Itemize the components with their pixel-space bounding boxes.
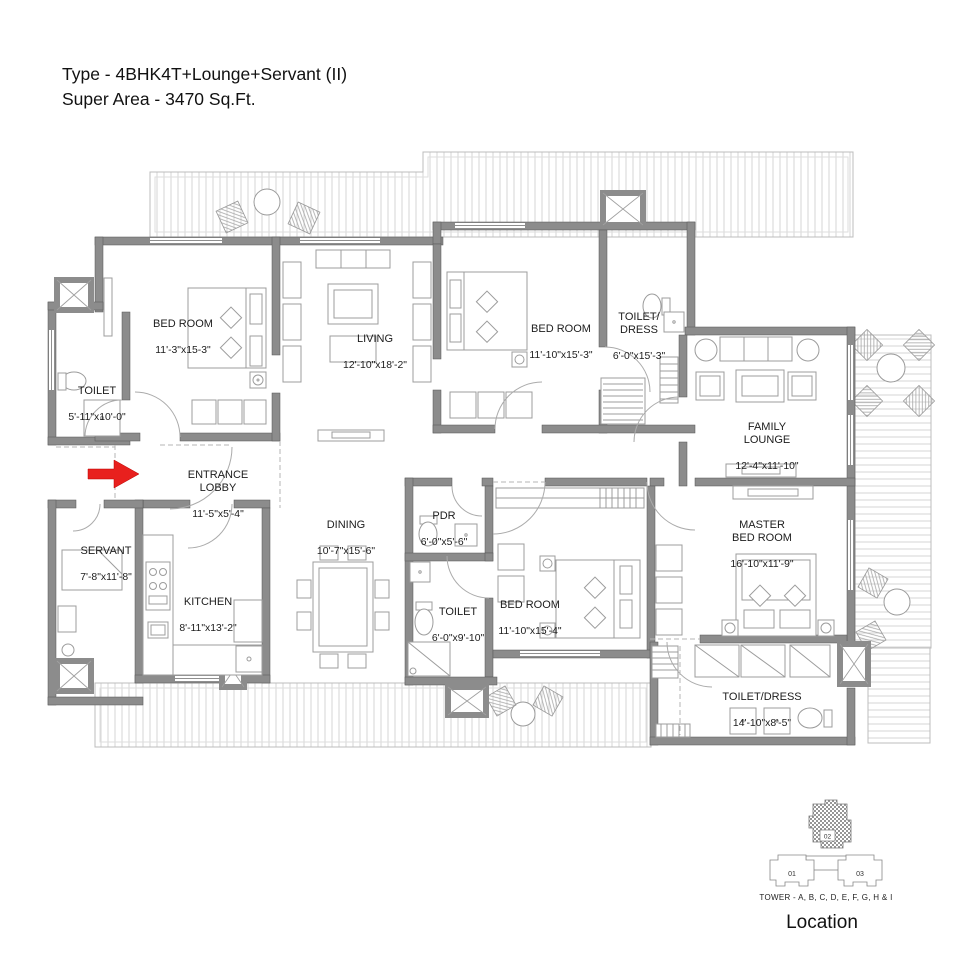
room-label-bedroom-3: BED ROOM 11'-10"x15'-4"	[498, 586, 561, 651]
room-label-pdr: PDR 6'-0"x5'-6"	[421, 497, 468, 562]
location-label: Location	[786, 912, 858, 934]
room-label-toilet-top-left: TOILET 5'-11"x10'-0"	[68, 372, 125, 437]
room-label-servant: SERVANT 7'-8"x11'-8"	[80, 532, 132, 597]
bedroom-2-furniture	[447, 272, 532, 418]
tower-unit-01-label: 01	[788, 871, 796, 878]
room-label-toilet-dress-bottom: TOILET/DRESS 14'-10"x8'-5"	[722, 678, 801, 743]
room-label-toilet-dress-top: TOILET/ DRESS 6'-0"x15'-3"	[613, 298, 665, 376]
room-label-bedroom-2: BED ROOM 11'-10"x15'-3"	[529, 310, 592, 375]
room-label-kitchen: KITCHEN 8'-11"x13'-2"	[179, 583, 236, 648]
floor-plan-drawing: 02 01 03	[0, 0, 972, 972]
tower-key-plan: 02 01 03	[770, 800, 882, 886]
entrance-arrow-icon	[88, 460, 139, 488]
floor-plan-page: Type - 4BHK4T+Lounge+Servant (II) Super …	[0, 0, 972, 972]
room-label-family-lounge: FAMILY LOUNGE 12'-4"x11'-10"	[735, 408, 798, 486]
room-label-master-bedroom: MASTER BED ROOM 16'-10"x11'-9"	[730, 506, 793, 584]
room-label-entrance-lobby: ENTRANCE LOBBY 11'-5"x5'-4"	[188, 456, 249, 534]
room-label-dining: DINING 10'-7"x15'-6"	[317, 506, 375, 571]
room-label-bedroom-1: BED ROOM 11'-3"x15-3"	[153, 305, 213, 370]
room-label-toilet-mid: TOILET 6'-0"x9'-10"	[432, 593, 484, 658]
room-label-living: LIVING 12'-10"x18'-2"	[343, 320, 407, 385]
tower-unit-02-label: 02	[824, 834, 832, 841]
tower-unit-03-label: 03	[856, 871, 864, 878]
tower-caption: TOWER - A, B, C, D, E, F, G, H & I	[759, 893, 892, 902]
